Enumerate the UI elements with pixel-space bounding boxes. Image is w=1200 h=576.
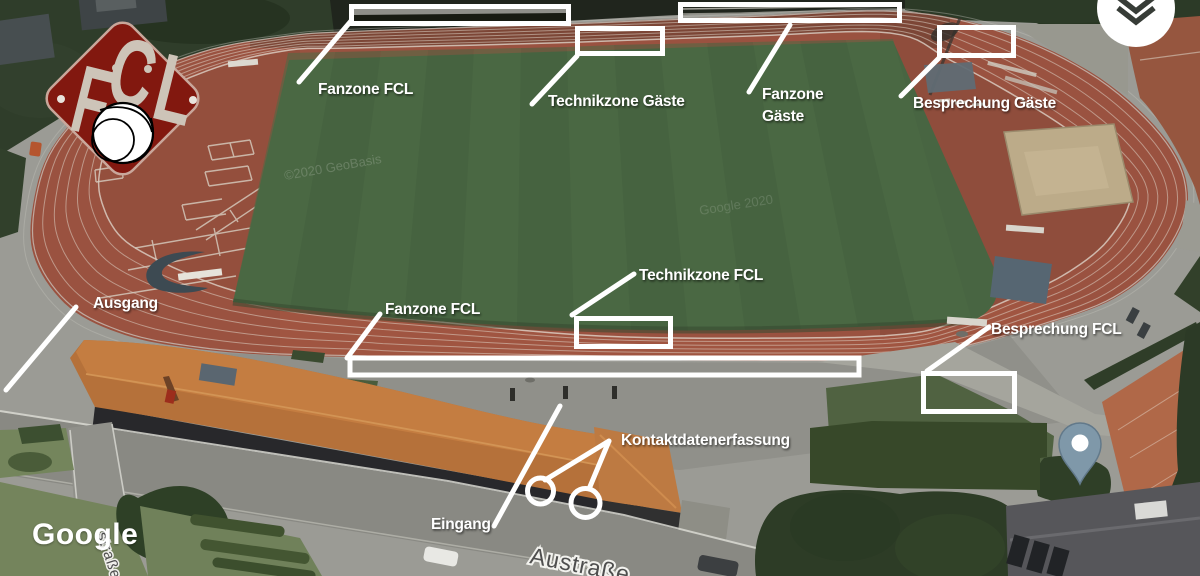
svg-text:Technikzone FCL: Technikzone FCL xyxy=(639,267,763,284)
svg-text:Fanzone FCL: Fanzone FCL xyxy=(318,81,413,98)
svg-text:Eingang: Eingang xyxy=(431,516,491,533)
svg-text:Ausgang: Ausgang xyxy=(93,295,158,312)
svg-text:Kontaktdatenerfassung: Kontaktdatenerfassung xyxy=(621,432,790,449)
svg-text:Besprechung Gäste: Besprechung Gäste xyxy=(913,95,1057,112)
svg-text:Besprechung FCL: Besprechung FCL xyxy=(991,321,1121,338)
svg-text:Google: Google xyxy=(32,518,138,551)
svg-text:Gäste: Gäste xyxy=(762,108,805,125)
svg-text:Fanzone FCL: Fanzone FCL xyxy=(385,301,480,318)
svg-text:Fanzone: Fanzone xyxy=(762,86,824,103)
svg-text:Technikzone Gäste: Technikzone Gäste xyxy=(548,93,685,110)
